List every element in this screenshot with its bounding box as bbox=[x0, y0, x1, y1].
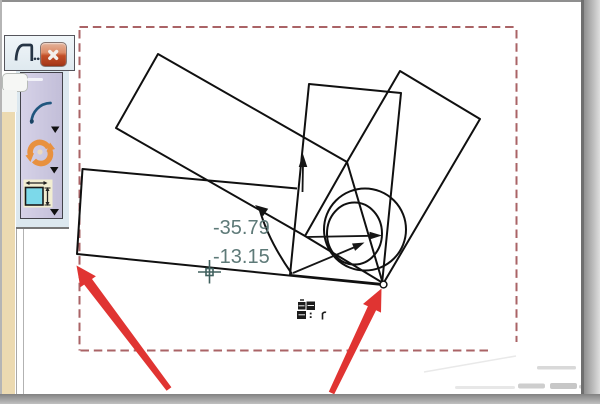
svg-text:-35.79: -35.79 bbox=[213, 217, 270, 239]
svg-text:-13.15: -13.15 bbox=[213, 246, 270, 268]
